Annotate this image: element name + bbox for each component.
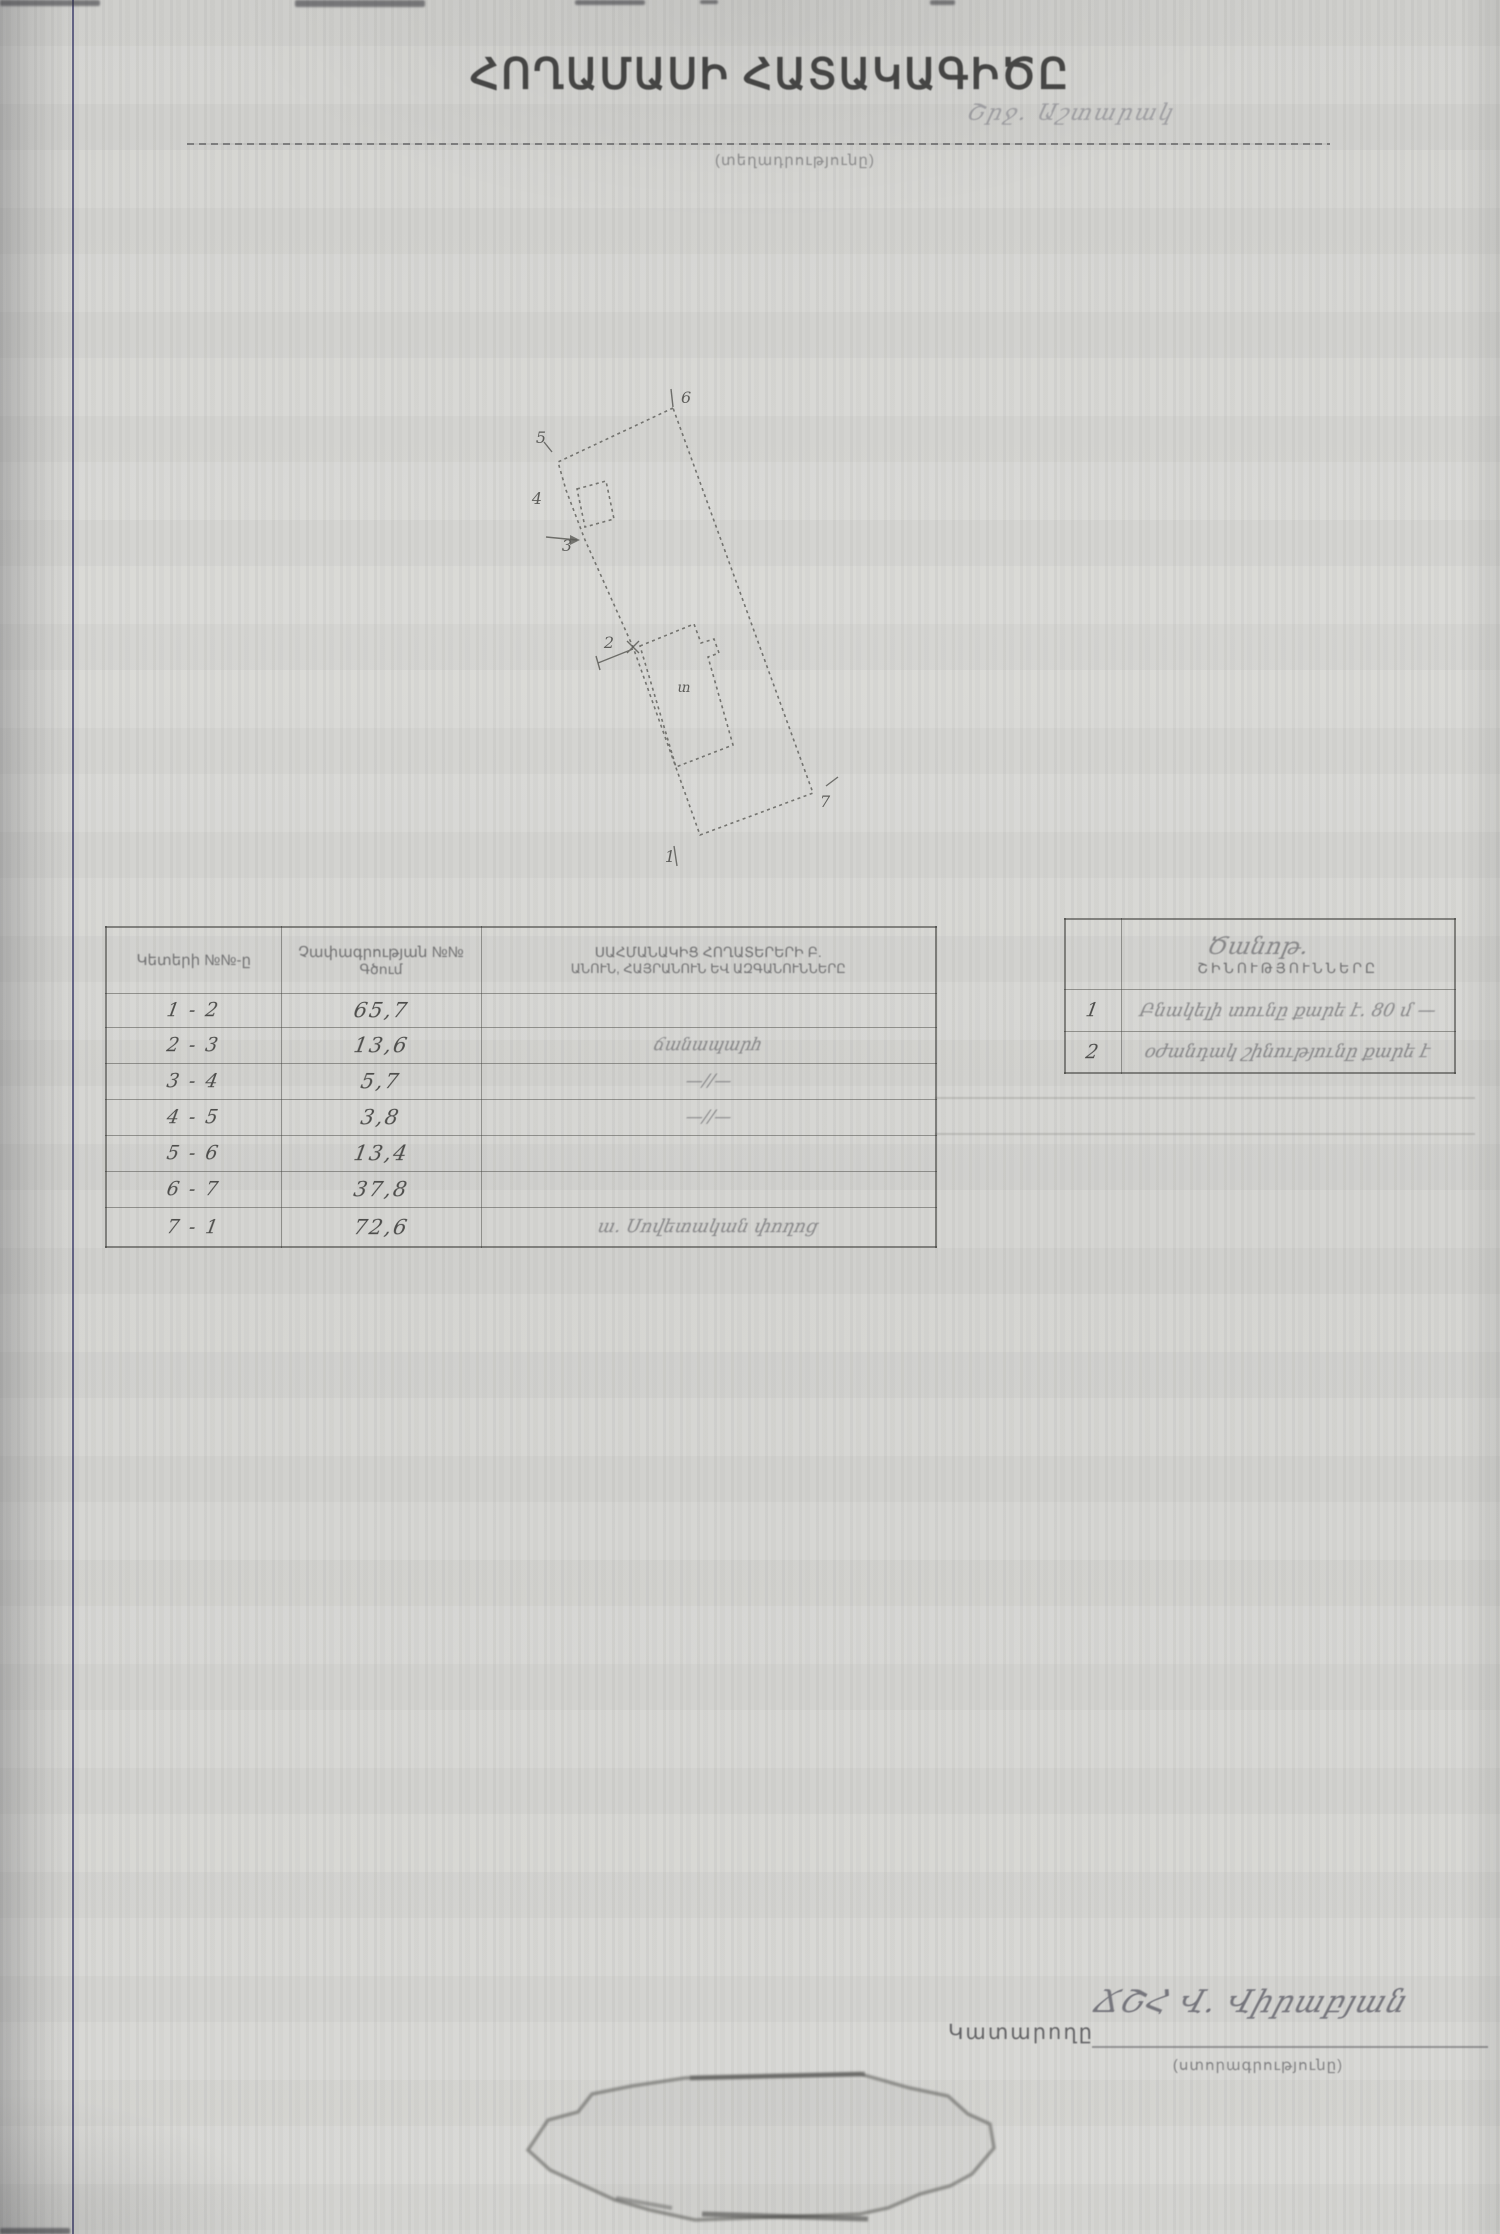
table-row: 2 - 3 13,6 ճանապարհ xyxy=(106,1027,936,1063)
signature-handwritten: ՃՇՀ Վ. Վիրաբյան xyxy=(1089,1984,1500,2020)
vertex-label: 1 xyxy=(665,847,675,866)
notes-header-typed: ՇԻՆՈՒԹՅՈՒՆՆԵՐԸ xyxy=(1122,960,1455,977)
notes-header-spacer xyxy=(1065,919,1121,989)
scan-streak xyxy=(935,1133,1475,1135)
table-row: 2 օժանդակ շինությունը քարե է xyxy=(1065,1031,1455,1073)
header-text: Չափագրության №№ xyxy=(282,943,481,961)
table-row: 4 - 5 3,8 —//— xyxy=(106,1099,936,1135)
neighbor-cell: ճանապարհ xyxy=(652,1035,764,1055)
vertex-label: 6 xyxy=(681,388,691,407)
neighbor-cell: —//— xyxy=(683,1071,733,1091)
length-cell: 5,7 xyxy=(359,1069,403,1093)
table-row: 3 - 4 5,7 —//— xyxy=(106,1063,936,1099)
header-text: Կետերի №№-ը xyxy=(107,951,281,969)
col-header-neighbors: ՍԱՀՄԱՆԱԿԻՑ ՀՈՂԱՏԵՐԵՐԻ Բ. ԱՆՈՒՆ, ՀԱՅՐԱՆՈՒ… xyxy=(481,927,936,993)
points-cell: 7 - 1 xyxy=(165,1216,222,1238)
points-cell: 2 - 3 xyxy=(165,1034,222,1056)
points-cell: 1 - 2 xyxy=(165,999,222,1021)
note-text: Բնակելի տունը քարե է. 80 մ — xyxy=(1138,1000,1438,1021)
points-cell: 6 - 7 xyxy=(165,1178,222,1200)
building-label: տ xyxy=(677,680,690,696)
col-header-length: Չափագրության №№ Գծում xyxy=(281,927,481,993)
vertex-label: 5 xyxy=(536,428,546,447)
scan-smudge xyxy=(0,0,100,6)
length-cell: 13,6 xyxy=(351,1033,410,1057)
header-text: ԱՆՈՒՆ, ՀԱՅՐԱՆՈՒՆ ԵՎ ԱԶԳԱՆՈՒՆՆԵՐԸ xyxy=(482,961,936,977)
vertex-cross-mark xyxy=(627,641,639,653)
col-header-points: Կետերի №№-ը xyxy=(106,927,281,993)
length-cell: 72,6 xyxy=(351,1215,410,1239)
stamp-outline xyxy=(520,2062,1000,2234)
signature-label: Կատարողը xyxy=(948,2020,1094,2045)
signature-caption: (ստորագրությունը) xyxy=(1108,2056,1408,2074)
table-row: 1 Բնակելի տունը քարե է. 80 մ — xyxy=(1065,989,1455,1031)
stamp-border xyxy=(528,2074,994,2220)
points-cell: 5 - 6 xyxy=(165,1142,222,1164)
vertex-label: 2 xyxy=(603,633,614,652)
table-row: 6 - 7 37,8 xyxy=(106,1171,936,1207)
page-title: ՀՈՂԱՄԱՍԻ ՀԱՏԱԿԱԳԻԾԸ xyxy=(0,49,1500,99)
table-row: 5 - 6 13,4 xyxy=(106,1135,936,1171)
table-row: 7 - 1 72,6 ա. Սովետական փողոց xyxy=(106,1207,936,1247)
plot-diagram: 1 2 3 4 5 6 7 տ xyxy=(500,375,1020,885)
region-handwritten-note: Շրջ. Աշտարակ xyxy=(965,100,1391,126)
length-cell: 37,8 xyxy=(351,1177,410,1201)
scan-smudge xyxy=(0,2228,70,2234)
notes-header-handwritten: Ծանոթ. xyxy=(1205,932,1311,960)
notes-table: Ծանոթ. ՇԻՆՈՒԹՅՈՒՆՆԵՐԸ 1 Բնակելի տունը քա… xyxy=(1064,918,1456,1074)
vertex-label: 4 xyxy=(531,489,542,508)
vertex-label: 3 xyxy=(562,536,572,555)
scan-smudge xyxy=(575,0,645,5)
survey-tick xyxy=(826,777,838,786)
points-cell: 4 - 5 xyxy=(165,1106,222,1128)
vertex-label: 7 xyxy=(820,792,831,811)
note-number: 1 xyxy=(1084,999,1102,1021)
location-caption: (տեղադրությունը) xyxy=(640,151,950,169)
plot-boundary xyxy=(558,408,813,835)
scan-smudge xyxy=(930,0,955,5)
points-cell: 3 - 4 xyxy=(165,1070,222,1092)
scanned-land-plot-document: ՀՈՂԱՄԱՍԻ ՀԱՏԱԿԱԳԻԾԸ Շրջ. Աշտարակ (տեղադր… xyxy=(0,0,1500,2234)
length-cell: 13,4 xyxy=(351,1141,410,1165)
header-text: Գծում xyxy=(282,961,481,978)
survey-tick xyxy=(671,389,673,407)
scan-smudge xyxy=(295,0,425,7)
scan-fold-line xyxy=(72,0,74,2234)
measurements-table: Կետերի №№-ը Չափագրության №№ Գծում ՍԱՀՄԱՆ… xyxy=(105,926,937,1248)
length-cell: 65,7 xyxy=(351,998,410,1022)
signature-line xyxy=(1092,2046,1488,2048)
table-row: 1 - 2 65,7 xyxy=(106,993,936,1027)
scan-streak xyxy=(935,1097,1475,1099)
note-number: 2 xyxy=(1084,1041,1102,1063)
note-text: օժանդակ շինությունը քարե է xyxy=(1143,1041,1432,1062)
length-cell: 3,8 xyxy=(359,1105,403,1129)
neighbor-cell: —//— xyxy=(683,1107,733,1127)
notes-header: Ծանոթ. ՇԻՆՈՒԹՅՈՒՆՆԵՐԸ xyxy=(1121,919,1455,989)
header-dashed-rule xyxy=(187,143,1330,145)
header-text: ՍԱՀՄԱՆԱԿԻՑ ՀՈՂԱՏԵՐԵՐԻ Բ. xyxy=(482,944,936,961)
neighbor-cell: ա. Սովետական փողոց xyxy=(596,1216,820,1237)
scan-smudge xyxy=(700,0,718,4)
boundary-notch-structure xyxy=(577,481,614,527)
